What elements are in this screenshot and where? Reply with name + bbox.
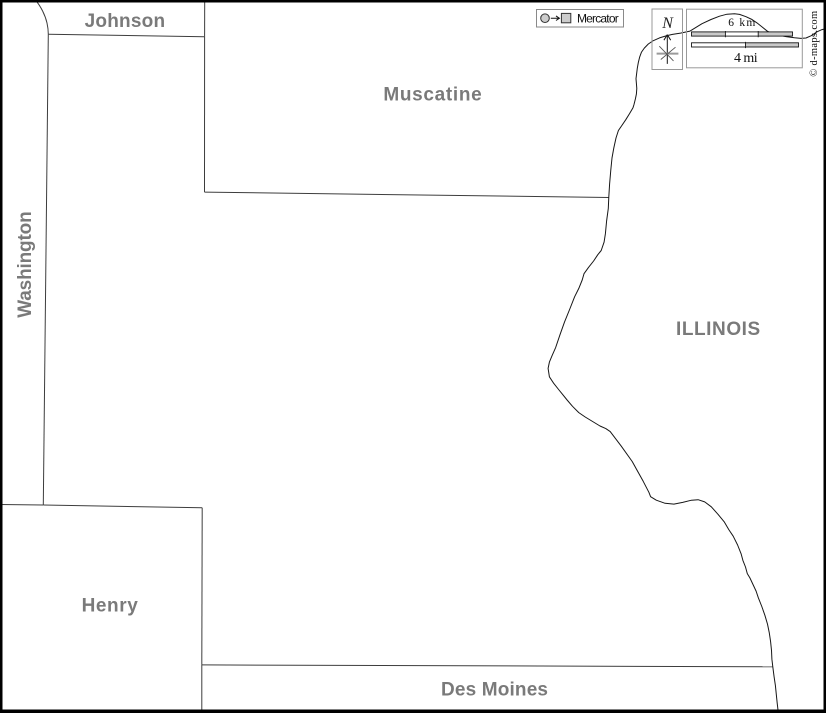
- svg-text:Muscatine: Muscatine: [383, 85, 481, 106]
- svg-text:© d-maps.com: © d-maps.com: [809, 11, 820, 77]
- svg-text:Washington: Washington: [15, 211, 36, 318]
- svg-text:N: N: [661, 15, 674, 32]
- svg-text:Johnson: Johnson: [85, 11, 166, 32]
- svg-text:ILLINOIS: ILLINOIS: [676, 319, 760, 340]
- svg-text:Des Moines: Des Moines: [441, 680, 548, 701]
- svg-text:4 mi: 4 mi: [734, 51, 758, 66]
- svg-text:Henry: Henry: [82, 596, 139, 617]
- svg-text:Mercator: Mercator: [577, 12, 619, 26]
- svg-text:6 km: 6 km: [728, 17, 755, 29]
